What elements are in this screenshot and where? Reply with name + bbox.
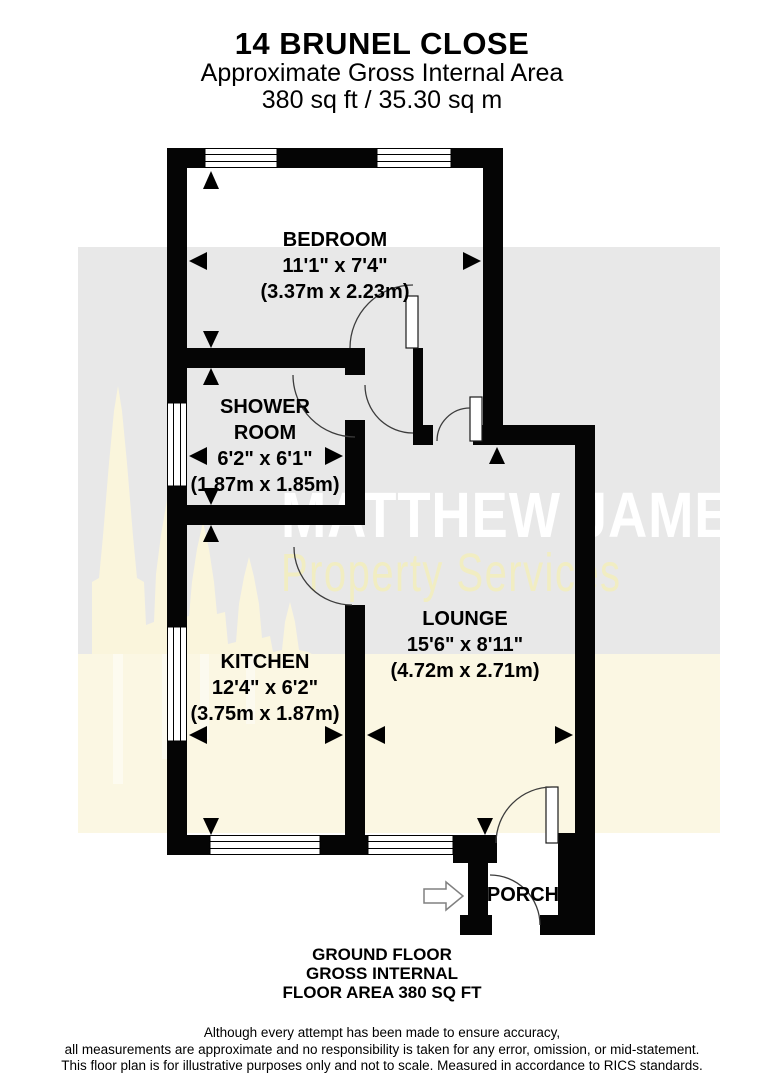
dim-arrow-kitchen-right <box>325 726 343 744</box>
room-dims-metric: (4.72m x 2.71m) <box>355 658 575 684</box>
room-dims-metric: (3.37m x 2.23m) <box>225 279 445 305</box>
floor-summary-line: GROUND FLOOR <box>262 945 502 964</box>
dim-arrow-lounge-down <box>477 818 493 835</box>
room-dims-imperial: 11'1" x 7'4" <box>225 253 445 279</box>
floorplan-page: 14 BRUNEL CLOSE Approximate Gross Intern… <box>0 0 764 1080</box>
wall-porch-bottom-left <box>460 915 492 935</box>
dim-arrow-lounge-up <box>489 447 505 464</box>
dim-arrow-bedroom-left <box>189 252 207 270</box>
floor-summary: GROUND FLOOR GROSS INTERNAL FLOOR AREA 3… <box>262 945 502 1002</box>
wall-bottom-3 <box>453 835 497 863</box>
room-dims-imperial: 15'6" x 8'11" <box>355 632 575 658</box>
door-arc-cupboard <box>437 408 470 441</box>
wall-hall <box>413 348 423 445</box>
door-leaves <box>406 296 558 843</box>
disclaimer: Although every attempt has been made to … <box>0 1025 764 1075</box>
room-label-porch: PORCH <box>460 882 586 908</box>
wall-bedroom-bottom <box>187 348 350 368</box>
wall-left <box>167 148 187 855</box>
wall-bottom-2 <box>320 835 368 855</box>
door-leaf-porch <box>546 787 558 843</box>
door-arc-hall-lounge <box>365 385 413 433</box>
room-name: BEDROOM <box>225 227 445 253</box>
room-name: PORCH <box>460 882 586 908</box>
wall-shower-post <box>345 348 365 375</box>
disclaimer-line: all measurements are approximate and no … <box>0 1042 764 1059</box>
room-label-lounge: LOUNGE 15'6" x 8'11" (4.72m x 2.71m) <box>355 606 575 684</box>
room-label-bedroom: BEDROOM 11'1" x 7'4" (3.37m x 2.23m) <box>225 227 445 305</box>
window-bottom-1 <box>210 836 320 855</box>
wall-bedroom-right <box>483 148 503 445</box>
room-name: SHOWER ROOM <box>205 394 325 446</box>
floorplan-drawing <box>0 0 764 1080</box>
door-arc-kitchen <box>294 547 352 605</box>
dim-arrow-kitchen-up <box>203 525 219 542</box>
door-arc-lounge-porch <box>496 787 552 843</box>
dim-arrow-kitchen-left <box>189 726 207 744</box>
dim-arrow-kitchen-down <box>203 818 219 835</box>
door-leaf-cupboard <box>470 397 482 441</box>
room-dims-metric: (1.87m x 1.85m) <box>185 472 345 498</box>
dim-arrow-bedroom-up <box>203 171 219 189</box>
window-top-1 <box>205 149 277 168</box>
dim-arrow-lounge-right <box>555 726 573 744</box>
room-label-shower-room: SHOWER ROOM 6'2" x 6'1" (1.87m x 1.85m) <box>185 394 345 498</box>
room-name: KITCHEN <box>155 649 375 675</box>
dim-arrow-lounge-left <box>367 726 385 744</box>
entry-arrow-icon <box>424 882 463 910</box>
window-left-1 <box>168 403 187 486</box>
wall-bottom-1 <box>167 835 210 855</box>
dim-arrow-bedroom-down <box>203 331 219 348</box>
room-dims-imperial: 12'4" x 6'2" <box>155 675 375 701</box>
floor-summary-line: GROSS INTERNAL <box>262 964 502 983</box>
room-dims-imperial: 6'2" x 6'1" <box>185 446 345 472</box>
window-bottom-2 <box>368 836 453 855</box>
dim-arrow-bedroom-right <box>463 252 481 270</box>
window-top-2 <box>377 149 451 168</box>
room-dims-metric: (3.75m x 1.87m) <box>155 701 375 727</box>
room-label-kitchen: KITCHEN 12'4" x 6'2" (3.75m x 1.87m) <box>155 649 375 727</box>
floor-summary-line: FLOOR AREA 380 SQ FT <box>262 983 502 1002</box>
wall-shower-bottom <box>187 505 365 525</box>
room-name: LOUNGE <box>355 606 575 632</box>
disclaimer-line: Although every attempt has been made to … <box>0 1025 764 1042</box>
disclaimer-line: This floor plan is for illustrative purp… <box>0 1058 764 1075</box>
dim-arrow-shower-up <box>203 368 219 385</box>
